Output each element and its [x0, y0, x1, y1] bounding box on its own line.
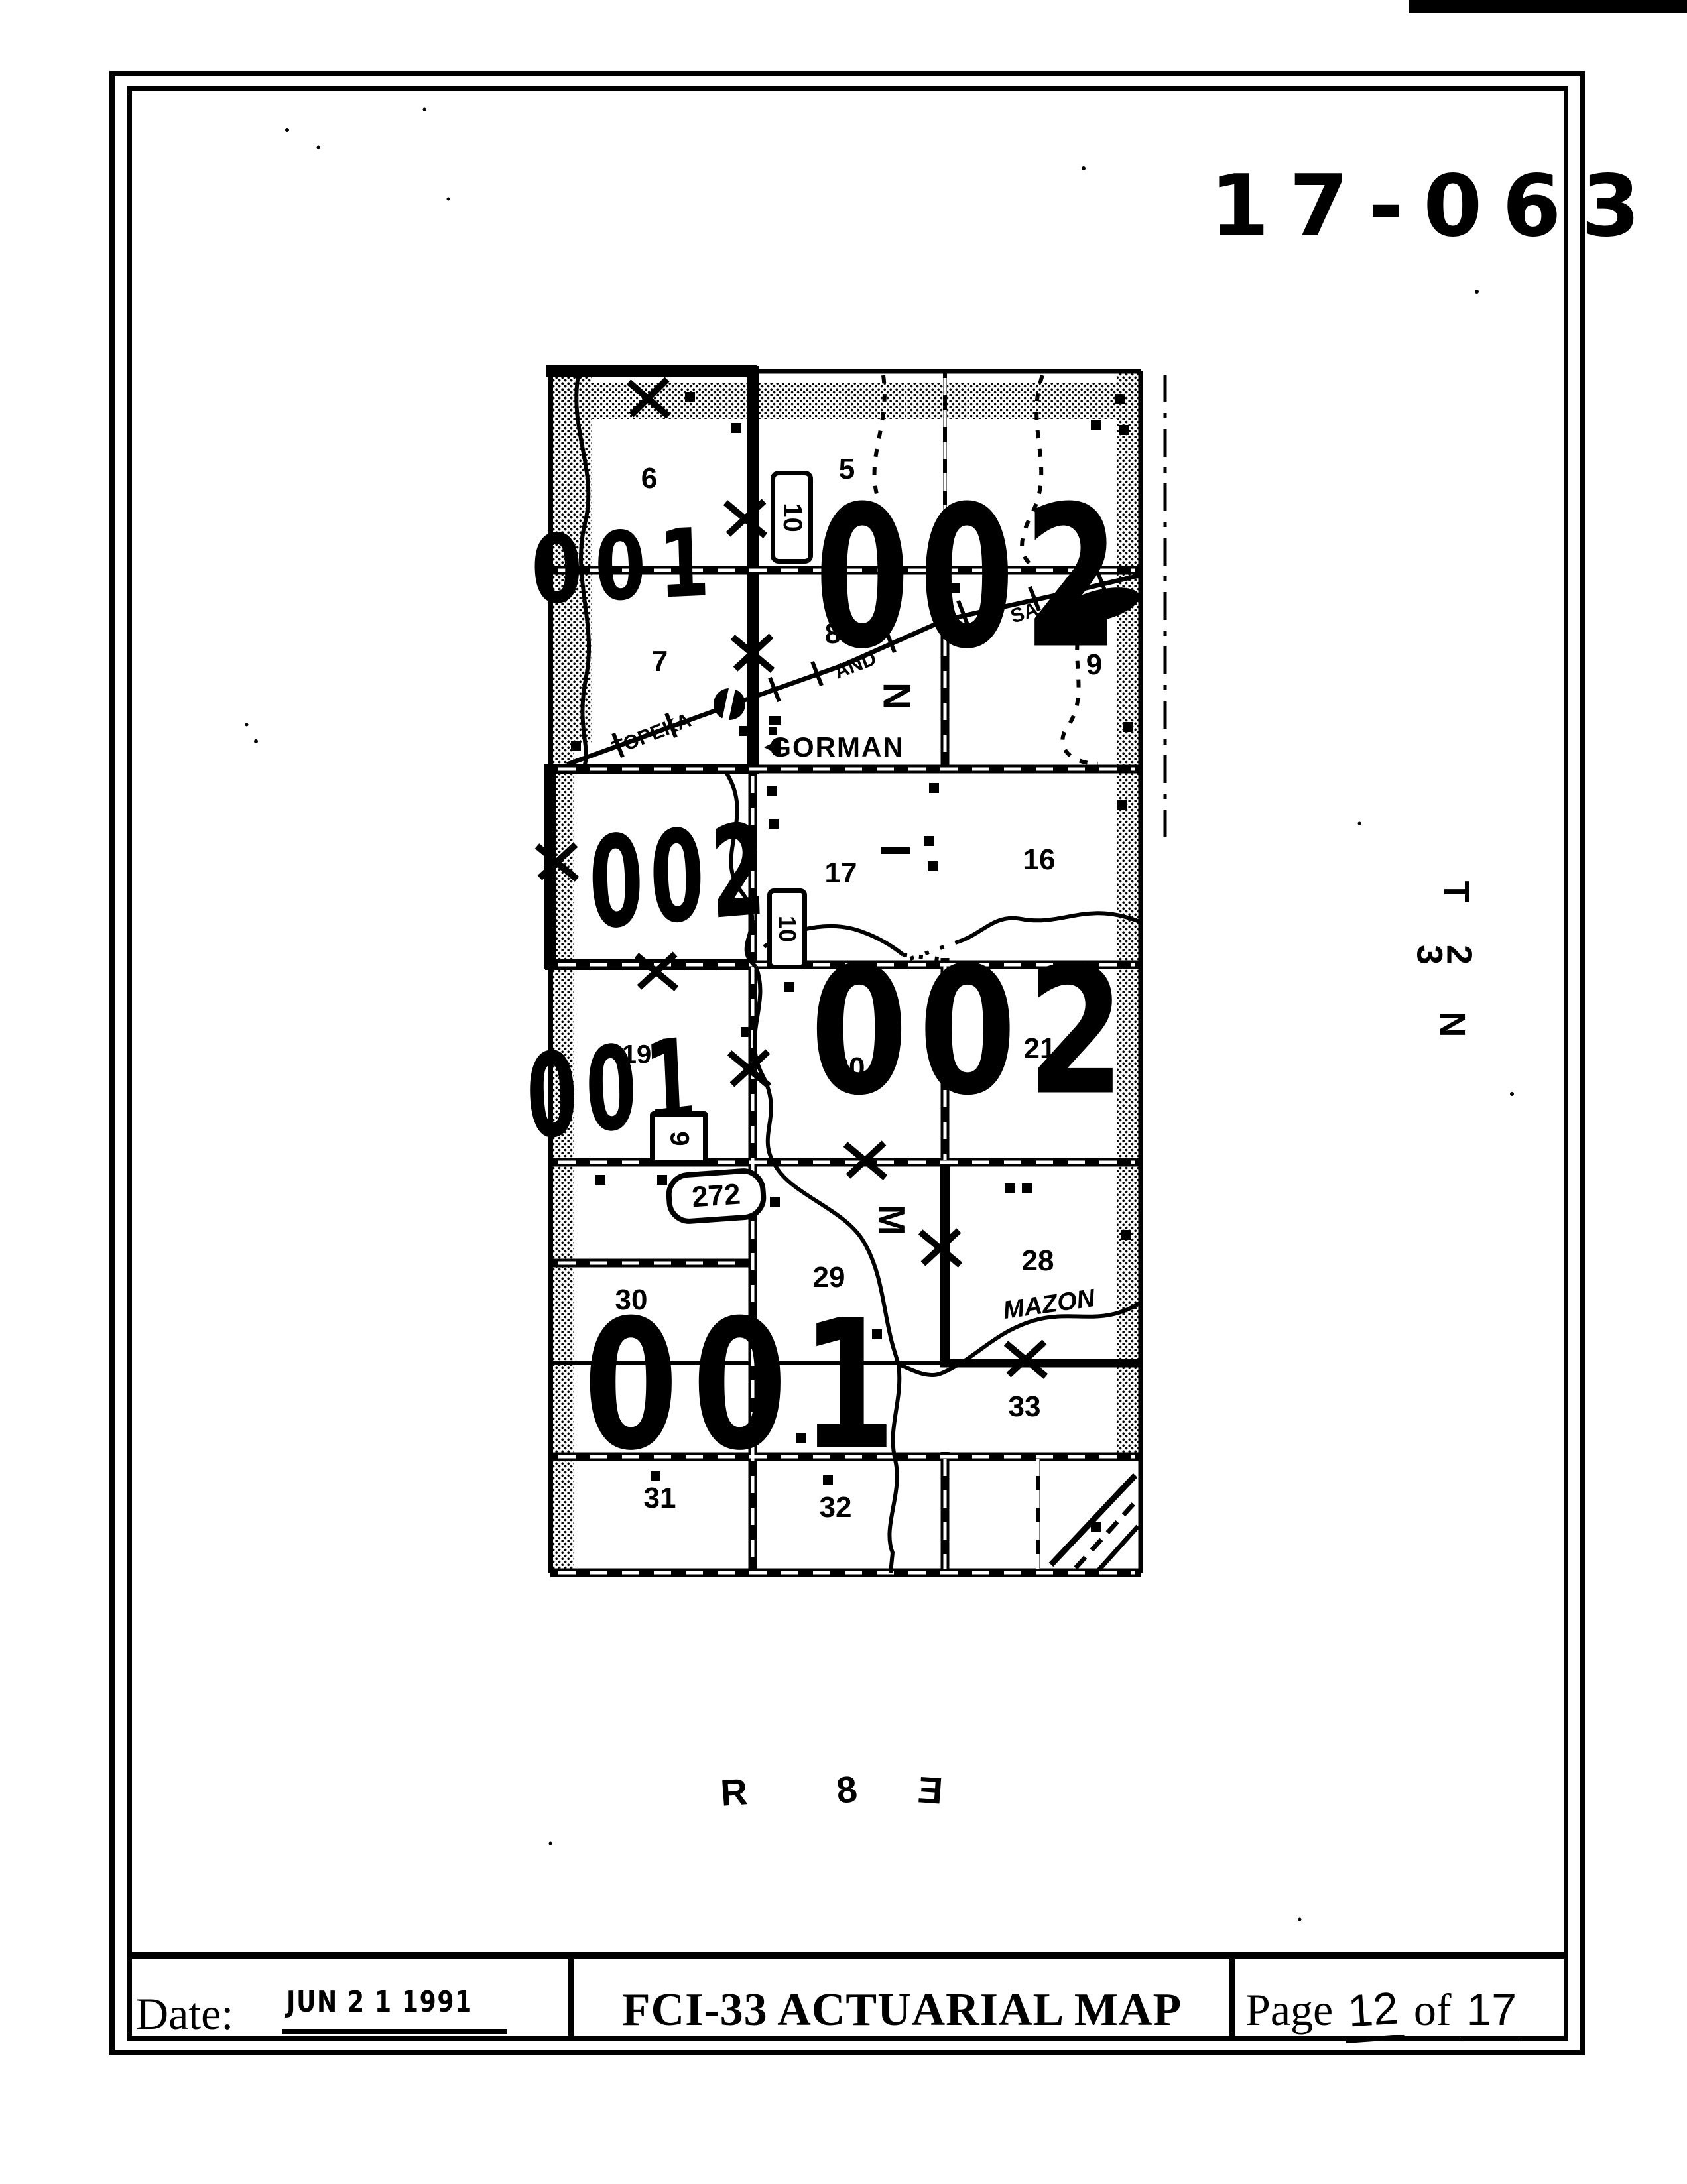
footer-total-pages: 17	[1462, 1984, 1521, 2041]
route-marker-272-label: 272	[691, 1178, 742, 1215]
section-7: 7	[652, 645, 668, 678]
route-shield-9-label: 9	[664, 1131, 694, 1146]
footer-divider-2	[1229, 1952, 1235, 2041]
range-label-r: R	[719, 1770, 749, 1815]
place-gorman: GORMAN	[769, 731, 904, 763]
route-shield-10-north-label: 10	[777, 503, 807, 532]
range-label-8: 8	[834, 1767, 859, 1812]
footer-page-number: 12	[1342, 1982, 1404, 2043]
section-33: 33	[1009, 1390, 1041, 1424]
footer-page-word: Page	[1245, 1984, 1333, 2035]
footer-top-line	[127, 1952, 1568, 1959]
annotation-letter-n: N	[875, 682, 919, 710]
hatched-corner-cell	[1051, 1475, 1138, 1570]
township-label-32: 3 2	[1419, 934, 1469, 975]
area-stamp-001-south: 001	[584, 1296, 910, 1475]
section-16: 16	[1023, 843, 1056, 877]
area-stamp-002-west: 002	[587, 806, 773, 947]
section-17: 17	[825, 857, 857, 890]
section-28: 28	[1022, 1244, 1054, 1278]
section-32: 32	[820, 1491, 852, 1524]
township-label-n: N	[1432, 1012, 1473, 1038]
section-6: 6	[641, 462, 657, 495]
footer-date-stamp: JUN 2 1 1991	[286, 1988, 473, 2017]
township-digit-2: 2	[1439, 945, 1480, 965]
route-marker-272: 272	[664, 1167, 767, 1225]
route-shield-10-mid: 10	[767, 888, 807, 969]
footer-page-indicator: Page 12 of 17	[1245, 1984, 1521, 2041]
footer-date-underline	[282, 2029, 507, 2034]
footer-divider-1	[568, 1952, 574, 2041]
station-symbol	[714, 684, 745, 724]
annotation-letter-m: M	[871, 1205, 914, 1236]
footer-of-word: of	[1414, 1984, 1452, 2035]
route-shield-9: 9	[650, 1111, 708, 1166]
area-stamp-001-northwest: 001	[530, 516, 723, 619]
township-label-t: T	[1436, 881, 1477, 903]
area-stamp-002-north: 002	[814, 481, 1128, 676]
footer-date-label: Date:	[136, 1988, 233, 2040]
footer-title: FCI-33 ACTUARIAL MAP	[622, 1984, 1182, 2037]
route-shield-10-mid-label: 10	[773, 916, 801, 942]
dash-annotation	[881, 847, 910, 854]
route-shield-10-north: 10	[771, 471, 813, 564]
scanned-actuarial-map-page: 17-063 6 5 7 8 9 17 16 19 20 21 30 29 28…	[0, 0, 1687, 2184]
map-number: 17-063	[1210, 164, 1660, 249]
area-stamp-002-central: 002	[810, 945, 1136, 1121]
range-label-e: E	[916, 1768, 944, 1812]
